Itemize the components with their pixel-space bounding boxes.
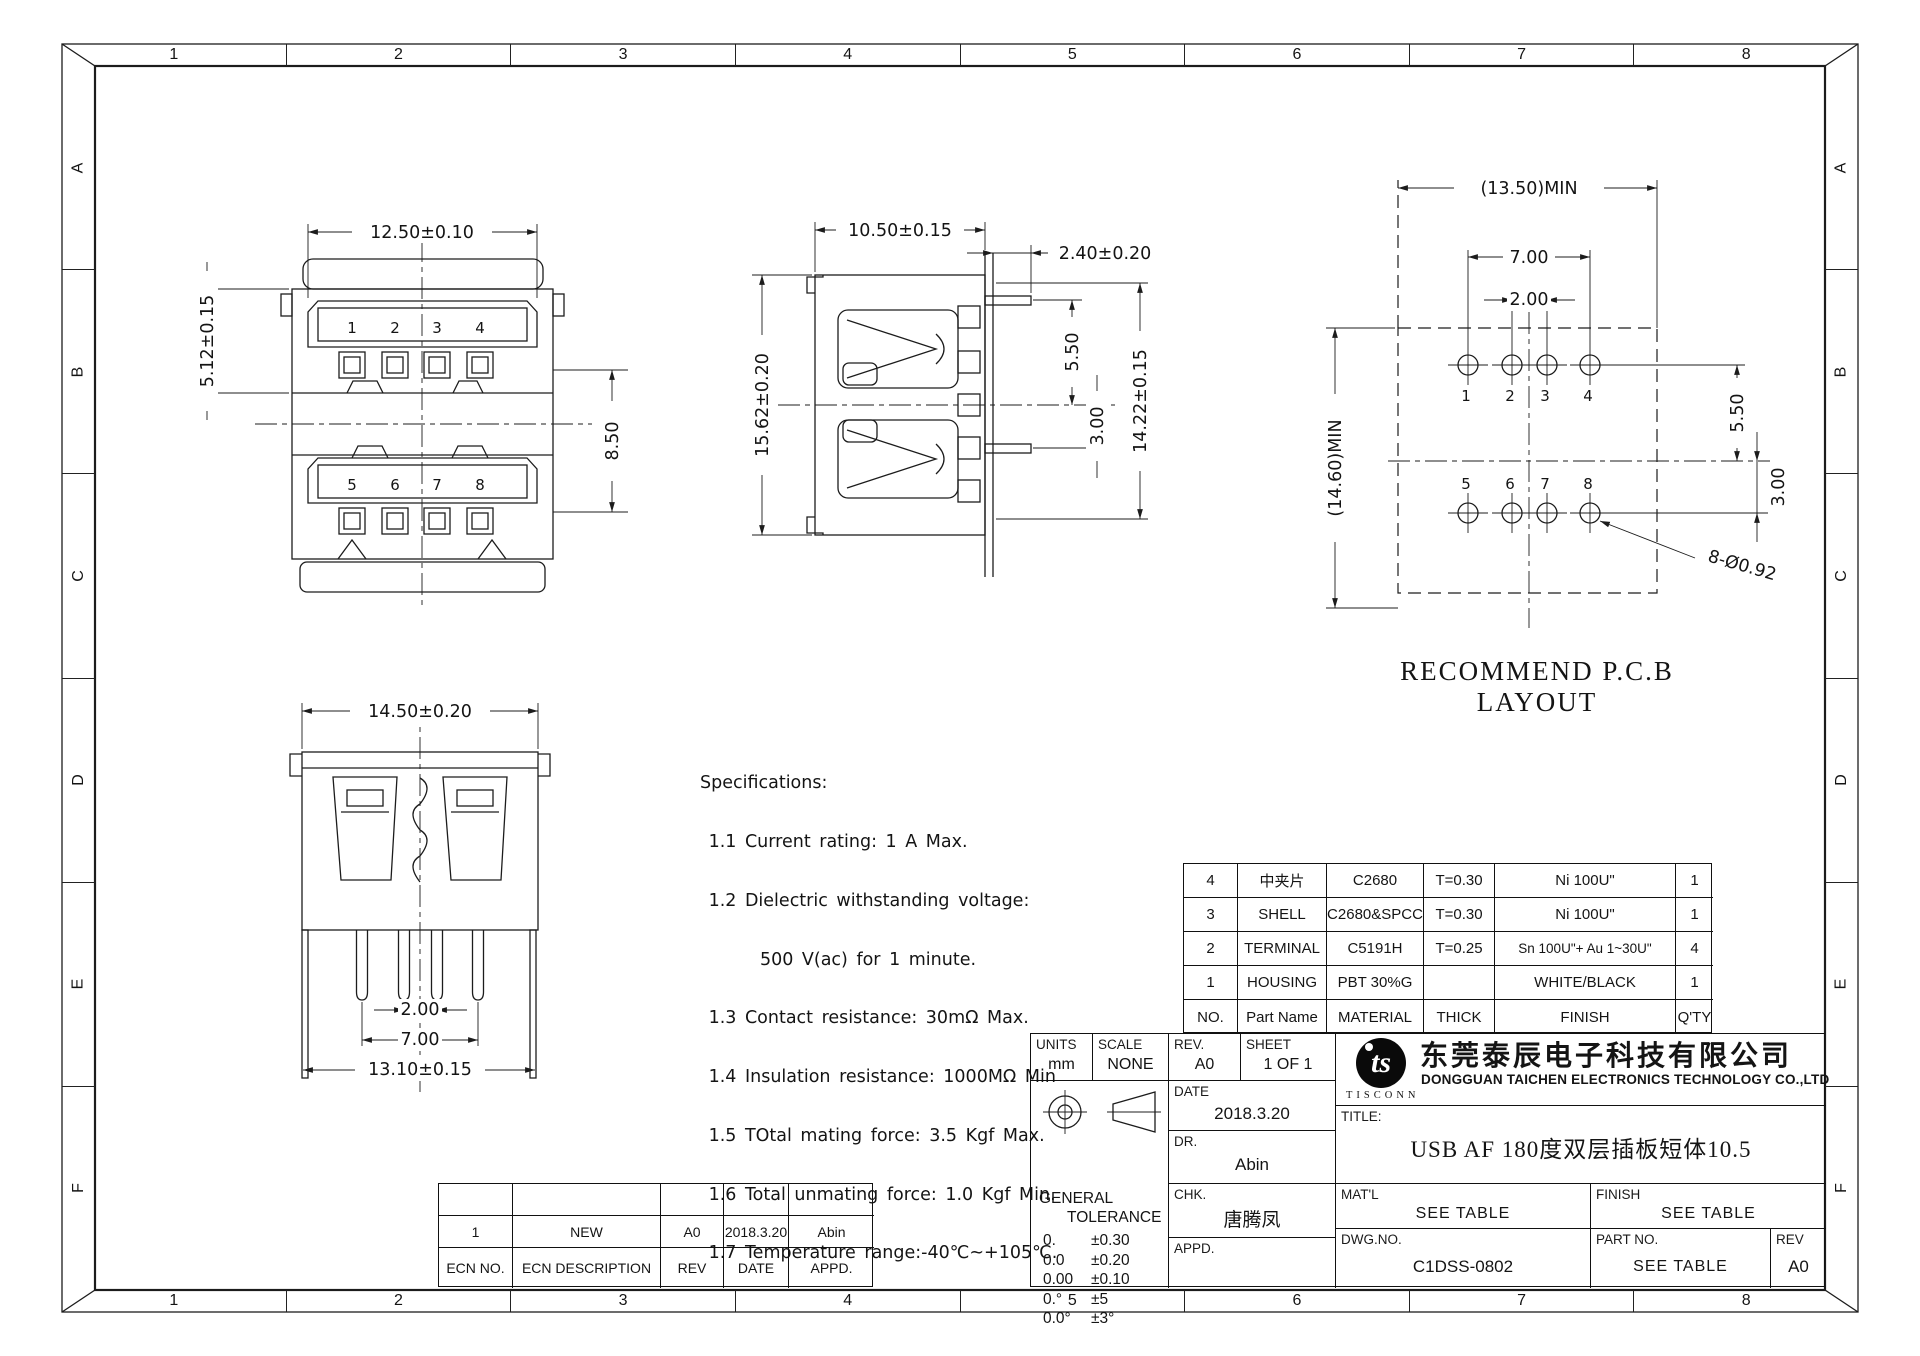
rev2-value: A0: [1771, 1245, 1826, 1288]
ecn-header: ECN DESCRIPTION: [513, 1248, 661, 1288]
matl-value: SEE TABLE: [1336, 1200, 1590, 1228]
rear-dim-pin-inner: 2.00: [401, 1000, 440, 1020]
pcb-hole-4: 4: [1583, 387, 1593, 405]
bom-header: THICK: [1424, 1000, 1495, 1034]
ecn-cell: 2018.3.20: [724, 1216, 789, 1248]
zone-strip-right: A B C D E F: [1825, 66, 1858, 1290]
bom-cell: TERMINAL: [1238, 932, 1327, 966]
sheet-cell: SHEET 1 OF 1: [1241, 1034, 1336, 1081]
pcb-dim-upper: 5.50: [1728, 394, 1748, 433]
part-value: SEE TABLE: [1591, 1245, 1770, 1288]
rear-view: 14.50±0.20 2.00 7.00 13.10±0.15: [290, 700, 550, 1092]
pcb-hole-5: 5: [1461, 475, 1471, 493]
spec-line: 1.1 Current rating: 1 A Max.: [700, 833, 1057, 853]
pcb-hole-3: 3: [1540, 387, 1550, 405]
bom-cell: C2680: [1327, 864, 1424, 898]
pcb-dim-row: 7.00: [1510, 248, 1549, 268]
rev-cell: REV. A0: [1169, 1034, 1241, 1081]
spec-line: 500 V(ac) for 1 minute.: [700, 951, 1057, 971]
zone-col-label: 8: [1742, 1292, 1751, 1310]
dr-value: Abin: [1169, 1147, 1335, 1183]
rear-dim-width: 14.50±0.20: [368, 702, 472, 722]
bom-cell: 1: [1676, 864, 1713, 898]
zone-row-label: C: [1833, 570, 1851, 582]
zone-col-label: 3: [619, 46, 628, 64]
ecn-cell: [724, 1184, 789, 1216]
bom-header: MATERIAL: [1327, 1000, 1424, 1034]
matl-cell: MAT'L SEE TABLE: [1336, 1184, 1591, 1229]
front-pin-7: 7: [432, 476, 442, 494]
bom-cell: Sn 100U"+ Au 1~30U": [1495, 932, 1676, 966]
front-pin-2: 2: [390, 319, 400, 337]
drawing-sheet: 1 2 3 4 5 6 7 8 12.50±0.10 5.12±0.15 8.5…: [0, 0, 1920, 1356]
zone-row-label: F: [1833, 1184, 1851, 1194]
zone-col-label: 1: [169, 1292, 178, 1310]
pcb-hole-6: 6: [1505, 475, 1515, 493]
zone-col-label: 6: [1292, 1292, 1301, 1310]
pcb-layout: (13.50)MIN (14.60)MIN 1 2: [1324, 177, 1789, 628]
pcb-dim-lower: 3.00: [1769, 468, 1789, 507]
bom-cell: T=0.30: [1424, 898, 1495, 932]
company-cell: ts TISCONN 东莞泰辰电子科技有限公司 DONGGUAN TAICHEN…: [1336, 1034, 1826, 1106]
appd-cell: APPD.: [1169, 1238, 1336, 1288]
company-name-en: DONGGUAN TAICHEN ELECTRONICS TECHNOLOGY …: [1421, 1072, 1829, 1087]
spec-line: 1.5 TOtal mating force: 3.5 Kgf Max.: [700, 1127, 1057, 1147]
chk-value: 唐腾凤: [1169, 1200, 1335, 1237]
bom-cell: 1: [1184, 966, 1238, 1000]
bom-cell: 4: [1184, 864, 1238, 898]
ecn-header: DATE: [724, 1248, 789, 1288]
front-pin-3: 3: [432, 319, 442, 337]
zone-row-label: D: [1833, 774, 1851, 786]
zone-row-label: A: [69, 162, 87, 173]
bom-cell: Ni 100U": [1495, 864, 1676, 898]
bom-cell: 1: [1676, 898, 1713, 932]
bom-cell: Ni 100U": [1495, 898, 1676, 932]
front-dim-left: 5.12±0.15: [198, 295, 218, 388]
side-dim-peg-top: 5.50: [1063, 333, 1083, 372]
appd-value: [1169, 1254, 1335, 1288]
dr-cell: DR. Abin: [1169, 1131, 1336, 1184]
chk-cell: CHK. 唐腾凤: [1169, 1184, 1336, 1238]
zone-col-label: 3: [619, 1292, 628, 1310]
zone-col-label: 7: [1517, 1292, 1526, 1310]
ecn-header: ECN NO.: [439, 1248, 513, 1288]
title-block: UNITS mm SCALE NONE REV. A0 SHEET 1 OF 1: [1030, 1033, 1825, 1287]
drawing-title: USB AF 180度双层插板短体10.5: [1336, 1130, 1826, 1164]
zone-row-label: C: [70, 570, 88, 582]
pcb-hole-1: 1: [1461, 387, 1471, 405]
tolerance-list: 0.±0.30 0.0±0.20 0.00±0.10 0.°±5 0.0°±3°: [1043, 1231, 1161, 1329]
zone-col-label: 2: [394, 1292, 403, 1310]
front-dim-width: 12.50±0.10: [370, 223, 474, 243]
dwg-cell: DWG.NO. C1DSS-0802: [1336, 1229, 1591, 1288]
title-cell: TITLE: USB AF 180度双层插板短体10.5: [1336, 1106, 1826, 1184]
side-dim-total: 14.22±0.15: [1131, 349, 1151, 453]
tolerance-cell: GENERAL TOLERANCE 0.±0.30 0.0±0.20 0.00±…: [1031, 1081, 1169, 1288]
pcb-dim-col: 2.00: [1510, 290, 1549, 310]
zone-row-label: E: [1832, 979, 1850, 990]
zone-row-label: B: [1832, 366, 1850, 377]
ecn-cell: [439, 1184, 513, 1216]
zone-col-label: 4: [843, 46, 852, 64]
rear-dim-pin-outer: 7.00: [401, 1030, 440, 1050]
ecn-header: APPD.: [789, 1248, 874, 1288]
logo-mark: ts: [1356, 1038, 1406, 1088]
ecn-cell: A0: [661, 1216, 724, 1248]
zone-col-label: 5: [1068, 46, 1077, 64]
sheet-value: 1 OF 1: [1241, 1050, 1335, 1080]
ecn-cell: [513, 1184, 661, 1216]
date-value: 2018.3.20: [1169, 1097, 1335, 1130]
zone-strip-top: 1 2 3 4 5 6 7 8: [62, 44, 1858, 66]
pcb-dim-width: (13.50)MIN: [1480, 179, 1577, 199]
side-dim-tail: 2.40±0.20: [1059, 244, 1152, 264]
finish-cell: FINISH SEE TABLE: [1591, 1184, 1826, 1229]
bom-cell: 中夹片: [1238, 864, 1327, 898]
bom-cell: T=0.30: [1424, 864, 1495, 898]
pcb-hole-2: 2: [1505, 387, 1515, 405]
bom-cell: 1: [1676, 966, 1713, 1000]
bom-cell: 4: [1676, 932, 1713, 966]
front-pin-8: 8: [475, 476, 485, 494]
finish-value: SEE TABLE: [1591, 1200, 1826, 1228]
pcb-hole-7: 7: [1540, 475, 1550, 493]
side-view: 10.50±0.15 2.40±0.20 15.62±0.20 5.50 3.0…: [751, 219, 1162, 577]
pcb-dim-hole-dia: 8-Ø0.92: [1706, 547, 1779, 586]
rear-dim-leg: 13.10±0.15: [368, 1060, 472, 1080]
bom-header: FINISH: [1495, 1000, 1676, 1034]
projection-symbol: [1031, 1083, 1169, 1141]
rev-value: A0: [1169, 1050, 1240, 1080]
front-pin-1: 1: [347, 319, 357, 337]
front-pin-5: 5: [347, 476, 357, 494]
front-pin-6: 6: [390, 476, 400, 494]
zone-row-label: B: [69, 366, 87, 377]
logo-wordmark: TISCONN: [1346, 1090, 1416, 1101]
general-tolerance-heading: GENERAL TOLERANCE: [1039, 1189, 1161, 1227]
ecn-cell: NEW: [513, 1216, 661, 1248]
bom-cell: C2680&SPCC: [1327, 898, 1424, 932]
ecn-table: 1 NEW A0 2018.3.20 Abin ECN NO. ECN DESC…: [438, 1183, 873, 1287]
bom-cell: T=0.25: [1424, 932, 1495, 966]
pcb-layout-caption: RECOMMEND P.C.B LAYOUT: [1352, 656, 1722, 718]
units-cell: UNITS mm: [1031, 1034, 1093, 1081]
bom-cell: 3: [1184, 898, 1238, 932]
bom-cell: 2: [1184, 932, 1238, 966]
spec-line: 1.4 Insulation resistance: 1000MΩ Min: [700, 1068, 1057, 1088]
units-value: mm: [1031, 1050, 1092, 1080]
ecn-cell: 1: [439, 1216, 513, 1248]
rev2-cell: REV A0: [1771, 1229, 1826, 1288]
title-label: TITLE:: [1341, 1109, 1382, 1124]
front-view: 1 2 3 4 5 6 7 8 12.50±0.10 5.12±0.15 8.5…: [196, 221, 628, 608]
zone-row-label: F: [70, 1184, 88, 1194]
bom-cell: SHELL: [1238, 898, 1327, 932]
spec-line: Specifications:: [700, 774, 1057, 794]
bom-cell: WHITE/BLACK: [1495, 966, 1676, 1000]
zone-col-label: 8: [1742, 46, 1751, 64]
scale-value: NONE: [1093, 1050, 1168, 1080]
zone-col-label: 1: [169, 46, 178, 64]
bom-cell: PBT 30%G: [1327, 966, 1424, 1000]
zone-row-label: D: [70, 774, 88, 786]
front-pin-4: 4: [475, 319, 485, 337]
side-dim-height: 15.62±0.20: [753, 353, 773, 457]
ecn-cell: [789, 1184, 874, 1216]
bom-header: Q'TY: [1676, 1000, 1713, 1034]
spec-line: 1.2 Dielectric withstanding voltage:: [700, 892, 1057, 912]
spec-line: 1.3 Contact resistance: 30mΩ Max.: [700, 1009, 1057, 1029]
bom-cell: HOUSING: [1238, 966, 1327, 1000]
zone-col-label: 6: [1292, 46, 1301, 64]
front-dim-right: 8.50: [603, 422, 623, 461]
zone-col-label: 2: [394, 46, 403, 64]
pcb-hole-8: 8: [1583, 475, 1593, 493]
bom-header: Part Name: [1238, 1000, 1327, 1034]
zone-row-label: A: [1832, 162, 1850, 173]
zone-strip-left: A B C D E F: [62, 66, 95, 1290]
dwg-value: C1DSS-0802: [1336, 1245, 1590, 1288]
bom-table: 4 中夹片 C2680 T=0.30 Ni 100U" 1 3 SHELL C2…: [1183, 863, 1712, 1033]
company-logo: ts TISCONN: [1346, 1038, 1416, 1101]
side-dim-peg-bottom: 3.00: [1088, 407, 1108, 446]
bom-cell: C5191H: [1327, 932, 1424, 966]
ecn-cell: Abin: [789, 1216, 874, 1248]
zone-col-label: 7: [1517, 46, 1526, 64]
side-dim-width: 10.50±0.15: [848, 221, 952, 241]
date-cell: DATE 2018.3.20: [1169, 1081, 1336, 1131]
zone-row-label: E: [69, 979, 87, 990]
scale-cell: SCALE NONE: [1093, 1034, 1169, 1081]
bom-cell: [1424, 966, 1495, 1000]
ecn-cell: [661, 1184, 724, 1216]
part-cell: PART NO. SEE TABLE: [1591, 1229, 1771, 1288]
logo-dot: [1365, 1043, 1373, 1051]
company-name-cn: 东莞泰辰电子科技有限公司: [1420, 1034, 1792, 1074]
ecn-header: REV: [661, 1248, 724, 1288]
bom-header: NO.: [1184, 1000, 1238, 1034]
pcb-dim-height: (14.60)MIN: [1326, 419, 1346, 516]
